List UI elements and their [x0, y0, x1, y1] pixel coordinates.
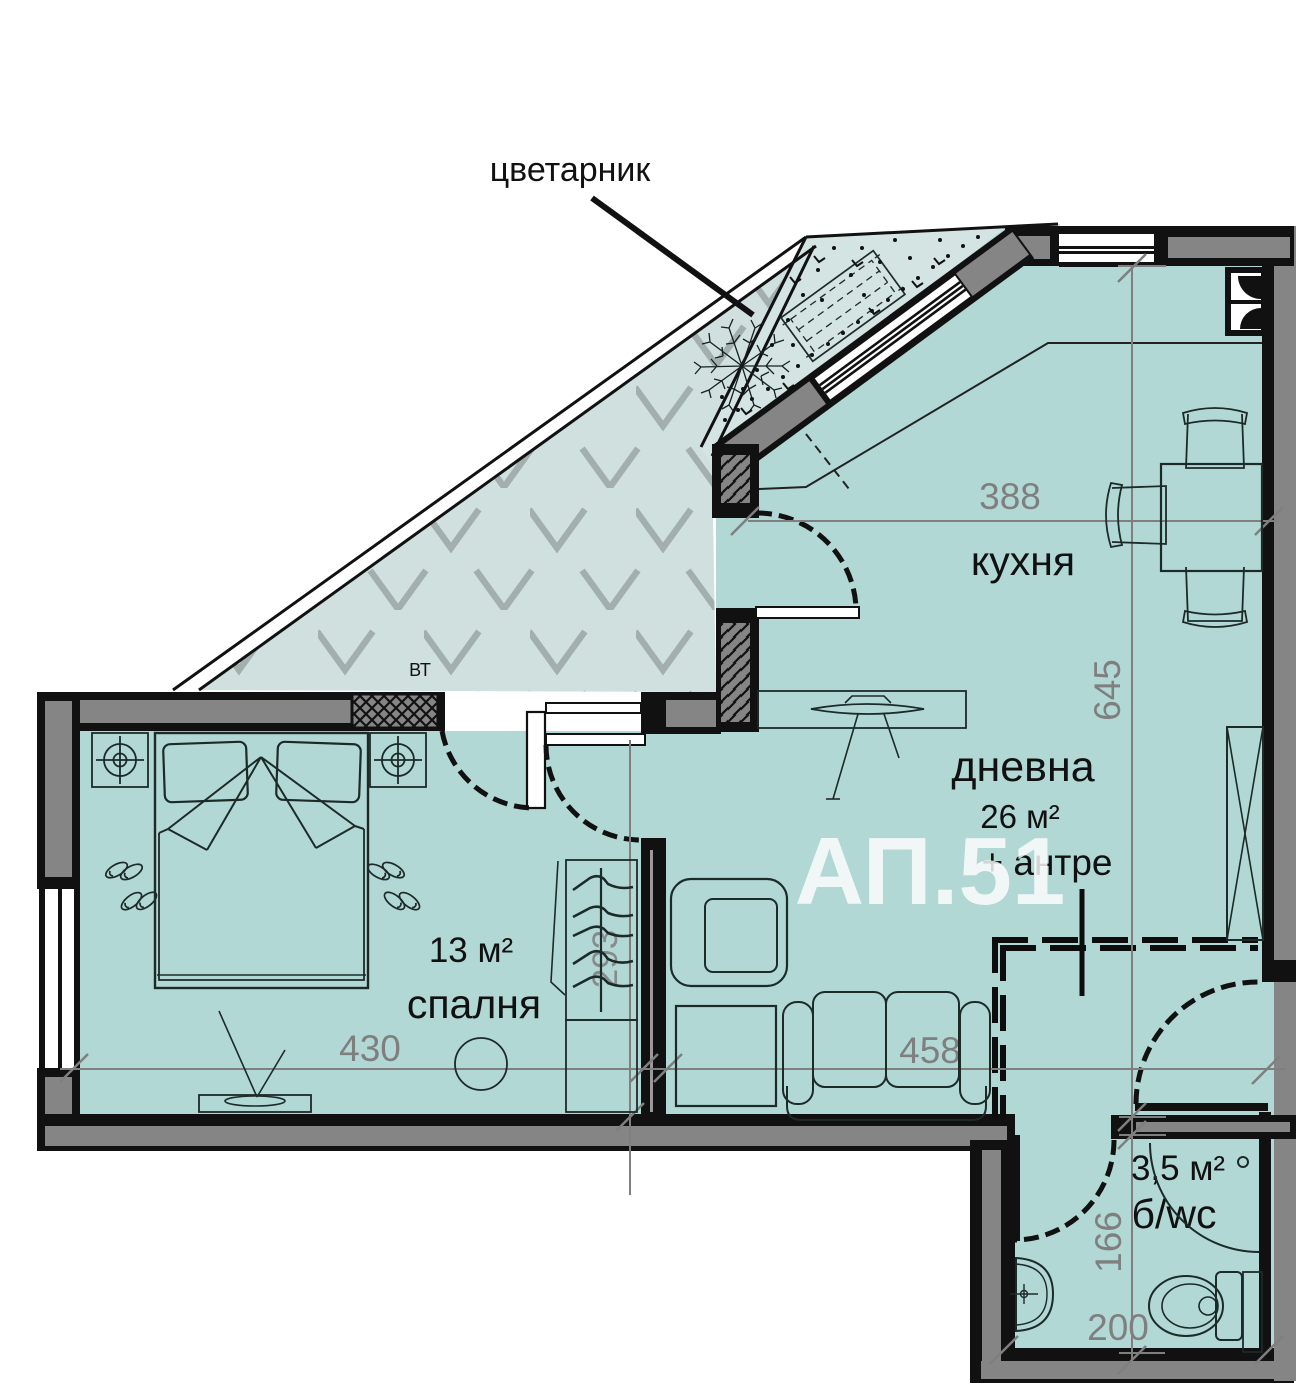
svg-text:458: 458 [899, 1030, 961, 1071]
svg-text:цветарник: цветарник [490, 151, 652, 189]
svg-text:АП.51: АП.51 [795, 818, 1066, 925]
svg-text:дневна: дневна [951, 743, 1094, 791]
svg-text:430: 430 [339, 1028, 401, 1069]
svg-text:388: 388 [979, 476, 1041, 517]
svg-text:кухня: кухня [971, 538, 1075, 584]
svg-text:200: 200 [1087, 1307, 1149, 1348]
svg-text:3,5 м²: 3,5 м² [1131, 1149, 1225, 1188]
svg-text:13 м²: 13 м² [429, 931, 513, 970]
svg-text:ВТ: ВТ [409, 660, 431, 680]
svg-text:спалня: спалня [407, 981, 541, 1027]
svg-text:166: 166 [1088, 1211, 1129, 1273]
svg-text:645: 645 [1087, 659, 1128, 721]
svg-text:б/wc: б/wc [1132, 1191, 1217, 1237]
